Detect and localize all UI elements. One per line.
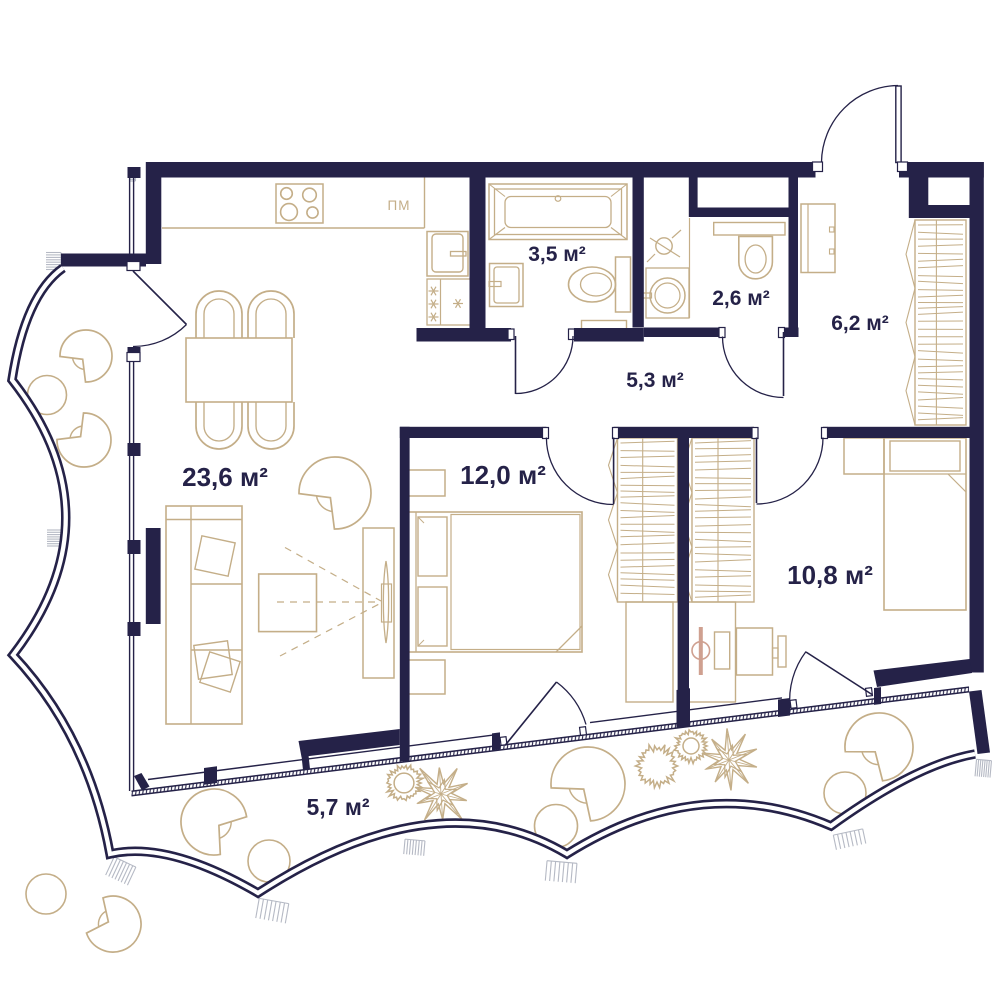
svg-text:ПМ: ПМ bbox=[388, 198, 411, 213]
svg-text:12,0 м²: 12,0 м² bbox=[460, 460, 546, 490]
svg-text:23,6 м²: 23,6 м² bbox=[182, 462, 268, 492]
svg-text:5,3 м²: 5,3 м² bbox=[626, 369, 684, 392]
svg-text:5,7 м²: 5,7 м² bbox=[306, 794, 369, 820]
svg-text:3,5 м²: 3,5 м² bbox=[528, 243, 586, 266]
svg-text:10,8 м²: 10,8 м² bbox=[787, 560, 873, 590]
svg-text:2,6 м²: 2,6 м² bbox=[712, 287, 770, 310]
svg-text:6,2 м²: 6,2 м² bbox=[831, 312, 889, 335]
